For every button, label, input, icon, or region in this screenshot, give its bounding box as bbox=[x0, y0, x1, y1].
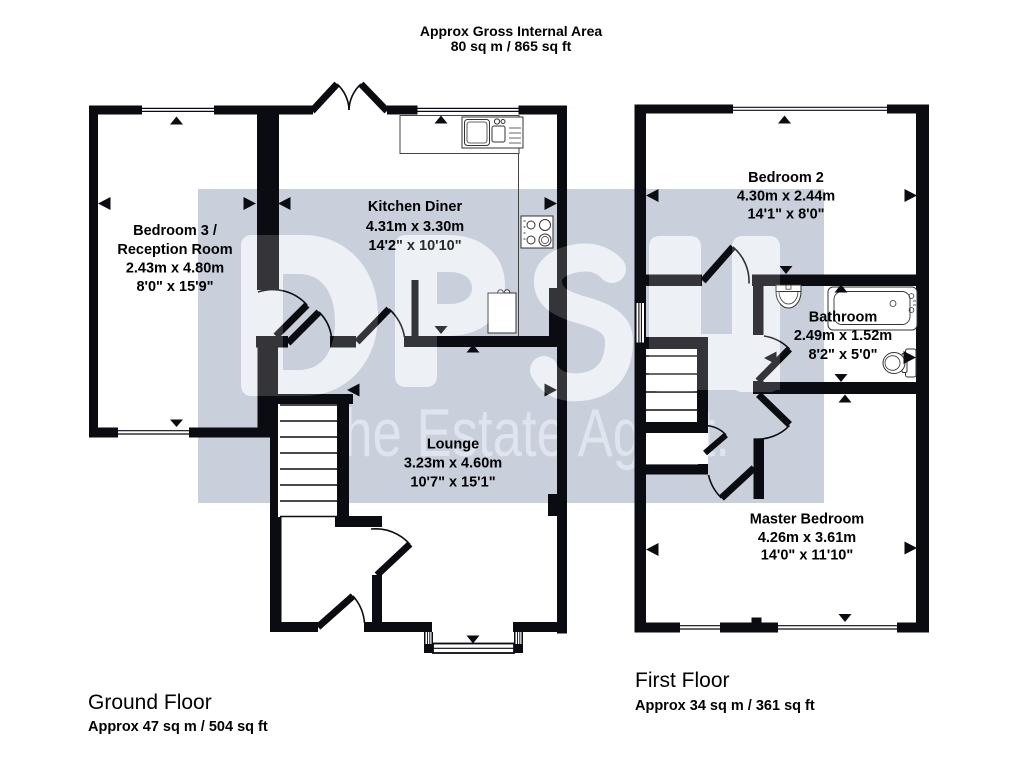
svg-text:Approx 34 sq m / 361 sq ft: Approx 34 sq m / 361 sq ft bbox=[635, 698, 815, 714]
svg-text:Reception Room: Reception Room bbox=[117, 242, 232, 258]
svg-text:8'2" x 5'0": 8'2" x 5'0" bbox=[808, 347, 877, 363]
svg-text:Ground Floor: Ground Floor bbox=[88, 691, 212, 714]
svg-text:4.26m x 3.61m: 4.26m x 3.61m bbox=[758, 530, 856, 546]
svg-text:First Floor: First Floor bbox=[635, 669, 730, 692]
svg-text:Lounge: Lounge bbox=[427, 437, 479, 453]
svg-text:14'0" x 11'10": 14'0" x 11'10" bbox=[761, 548, 853, 564]
svg-text:14'1" x 8'0": 14'1" x 8'0" bbox=[747, 207, 824, 223]
svg-text:Master Bedroom: Master Bedroom bbox=[750, 512, 864, 528]
svg-text:Bathroom: Bathroom bbox=[809, 310, 877, 326]
svg-text:Approx 47 sq m / 504 sq ft: Approx 47 sq m / 504 sq ft bbox=[88, 719, 268, 735]
svg-text:Kitchen Diner: Kitchen Diner bbox=[368, 199, 463, 215]
svg-text:2.49m x 1.52m: 2.49m x 1.52m bbox=[794, 328, 892, 344]
svg-text:Bedroom 3 /: Bedroom 3 / bbox=[133, 223, 217, 239]
svg-text:3.23m x 4.60m: 3.23m x 4.60m bbox=[404, 456, 502, 472]
svg-text:8'0" x 15'9": 8'0" x 15'9" bbox=[136, 279, 213, 295]
svg-text:4.30m x 2.44m: 4.30m x 2.44m bbox=[737, 189, 835, 205]
svg-text:10'7" x 15'1": 10'7" x 15'1" bbox=[410, 475, 495, 491]
svg-text:4.31m x 3.30m: 4.31m x 3.30m bbox=[366, 219, 464, 235]
svg-text:Approx Gross Internal Area: Approx Gross Internal Area bbox=[420, 23, 603, 39]
svg-text:Bedroom 2: Bedroom 2 bbox=[748, 170, 824, 186]
svg-text:2.43m x 4.80m: 2.43m x 4.80m bbox=[126, 261, 224, 277]
svg-text:80 sq m / 865 sq ft: 80 sq m / 865 sq ft bbox=[451, 38, 572, 54]
